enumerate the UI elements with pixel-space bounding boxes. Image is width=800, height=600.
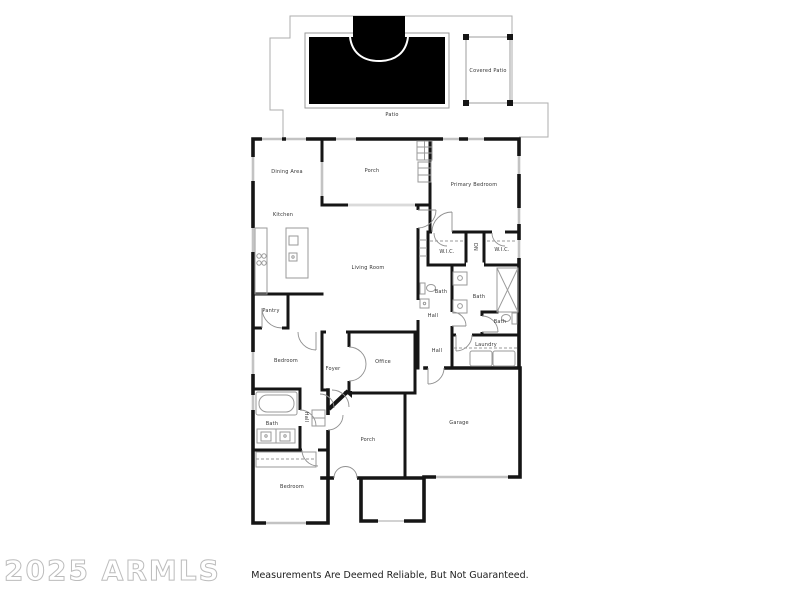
disclaimer-text: Measurements Are Deemed Reliable, But No… — [0, 570, 780, 581]
shower — [497, 268, 518, 312]
vanity-sinks — [453, 272, 467, 313]
patio-post — [507, 100, 513, 106]
bathtub — [256, 392, 297, 415]
bedroom-closet — [256, 452, 316, 467]
interior-walls — [253, 139, 519, 478]
patio-post — [463, 34, 469, 40]
toilet — [502, 313, 518, 324]
double-sinks — [257, 429, 295, 443]
floor-plan-drawing — [0, 0, 800, 600]
pool — [305, 16, 449, 108]
door-arcs — [262, 210, 505, 478]
spa — [353, 16, 405, 58]
toilet — [420, 283, 436, 308]
fixtures — [255, 141, 518, 467]
covered-patio — [463, 34, 513, 106]
kitchen-island — [286, 228, 308, 278]
kitchen-counter — [255, 228, 267, 294]
closet-shelves — [419, 240, 427, 256]
linen-closet — [312, 410, 325, 426]
laundry-machines — [454, 348, 518, 366]
patio-post — [463, 100, 469, 106]
patio-post — [507, 34, 513, 40]
floor-plan-page: { "watermark": "2025 ARMLS", "disclaimer… — [0, 0, 800, 600]
